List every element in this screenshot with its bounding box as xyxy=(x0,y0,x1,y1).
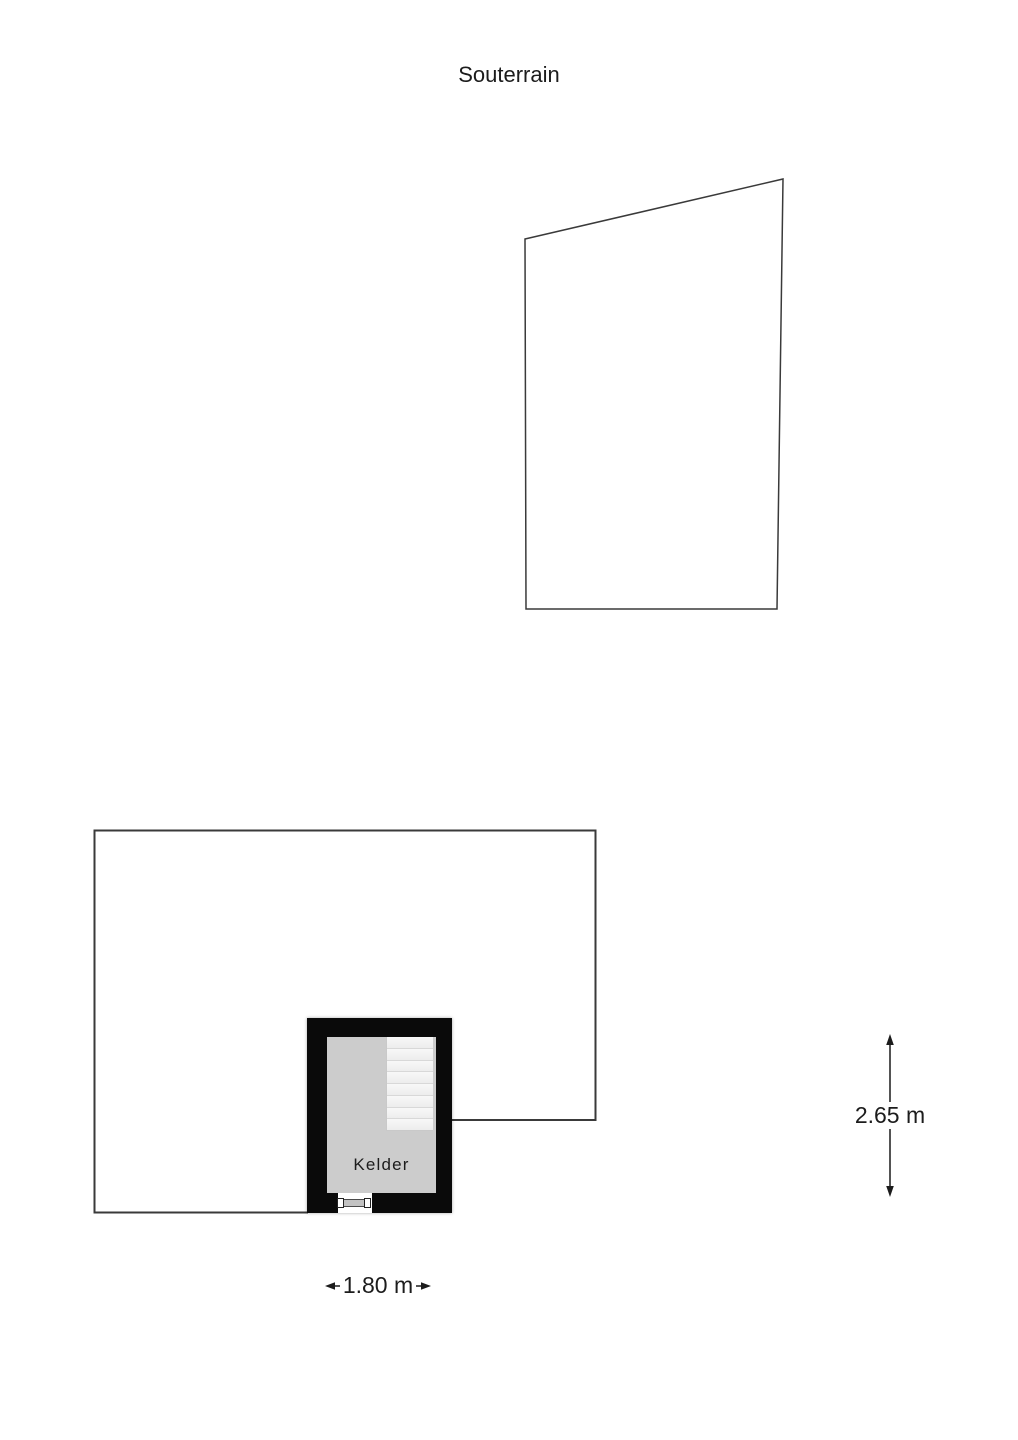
floorplan-canvas: Souterrain Kelder 2.65 m 1.80 m xyxy=(0,0,1018,1440)
stair-tread xyxy=(387,1084,433,1096)
upper-outline-shape xyxy=(525,179,783,609)
arrow-down-icon xyxy=(886,1186,894,1197)
stair-tread xyxy=(387,1096,433,1108)
stair-tread xyxy=(387,1108,433,1120)
dimension-label-horizontal: 1.80 m xyxy=(340,1272,416,1299)
stair-tread xyxy=(387,1072,433,1084)
stair-tread xyxy=(387,1049,433,1061)
stair-tread xyxy=(387,1061,433,1073)
floorplan-drawing xyxy=(0,0,1018,1440)
room-label-kelder: Kelder xyxy=(327,1155,436,1175)
stair-tread xyxy=(387,1119,433,1130)
arrow-up-icon xyxy=(886,1034,894,1045)
kelder-walls xyxy=(307,1018,452,1213)
window-symbol-end-left xyxy=(337,1198,344,1208)
dimension-label-vertical: 2.65 m xyxy=(845,1102,935,1129)
window-symbol-end-right xyxy=(364,1198,371,1208)
stair-tread xyxy=(387,1037,433,1049)
arrow-left-icon xyxy=(325,1282,335,1290)
arrow-right-icon xyxy=(421,1282,431,1290)
staircase xyxy=(386,1037,433,1131)
